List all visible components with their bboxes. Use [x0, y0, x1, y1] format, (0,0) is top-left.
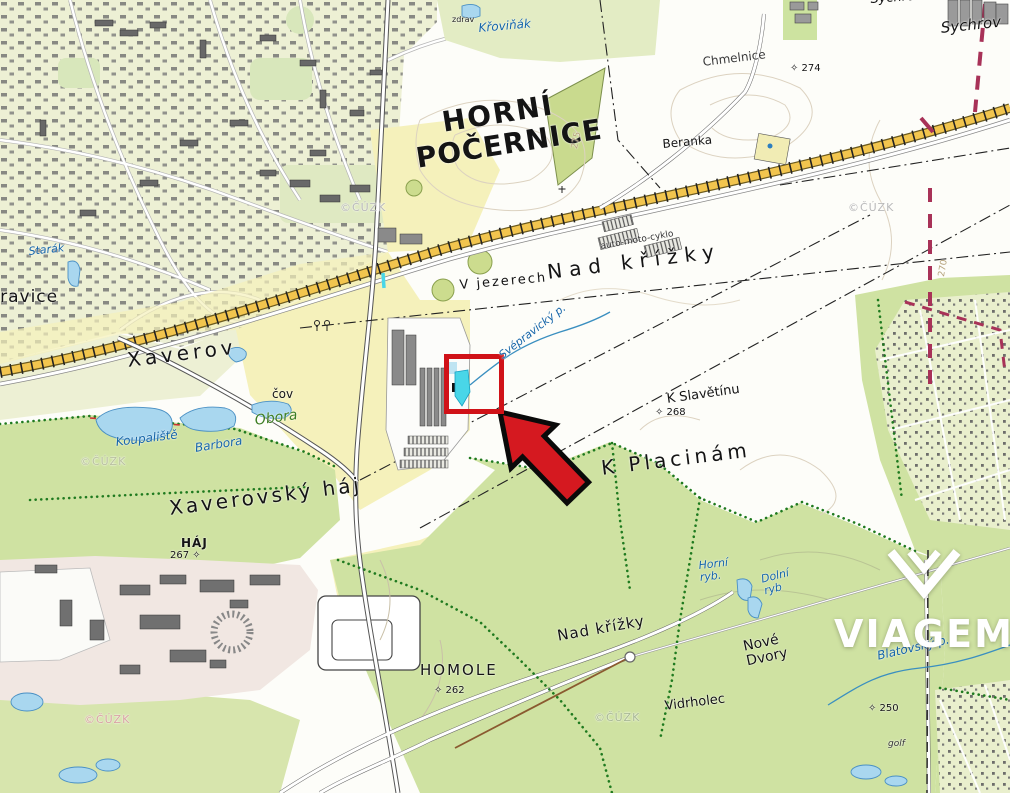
highlight-box — [444, 354, 504, 414]
viagem-gem-icon — [882, 546, 966, 606]
viagem-watermark: VIAGEM — [826, 546, 1010, 656]
viagem-wordmark: VIAGEM — [826, 612, 1010, 656]
map-screenshot: HORNÍPOČERNICENad křížkyV jezerechauto-m… — [0, 0, 1010, 793]
map-canvas[interactable] — [0, 0, 1010, 793]
